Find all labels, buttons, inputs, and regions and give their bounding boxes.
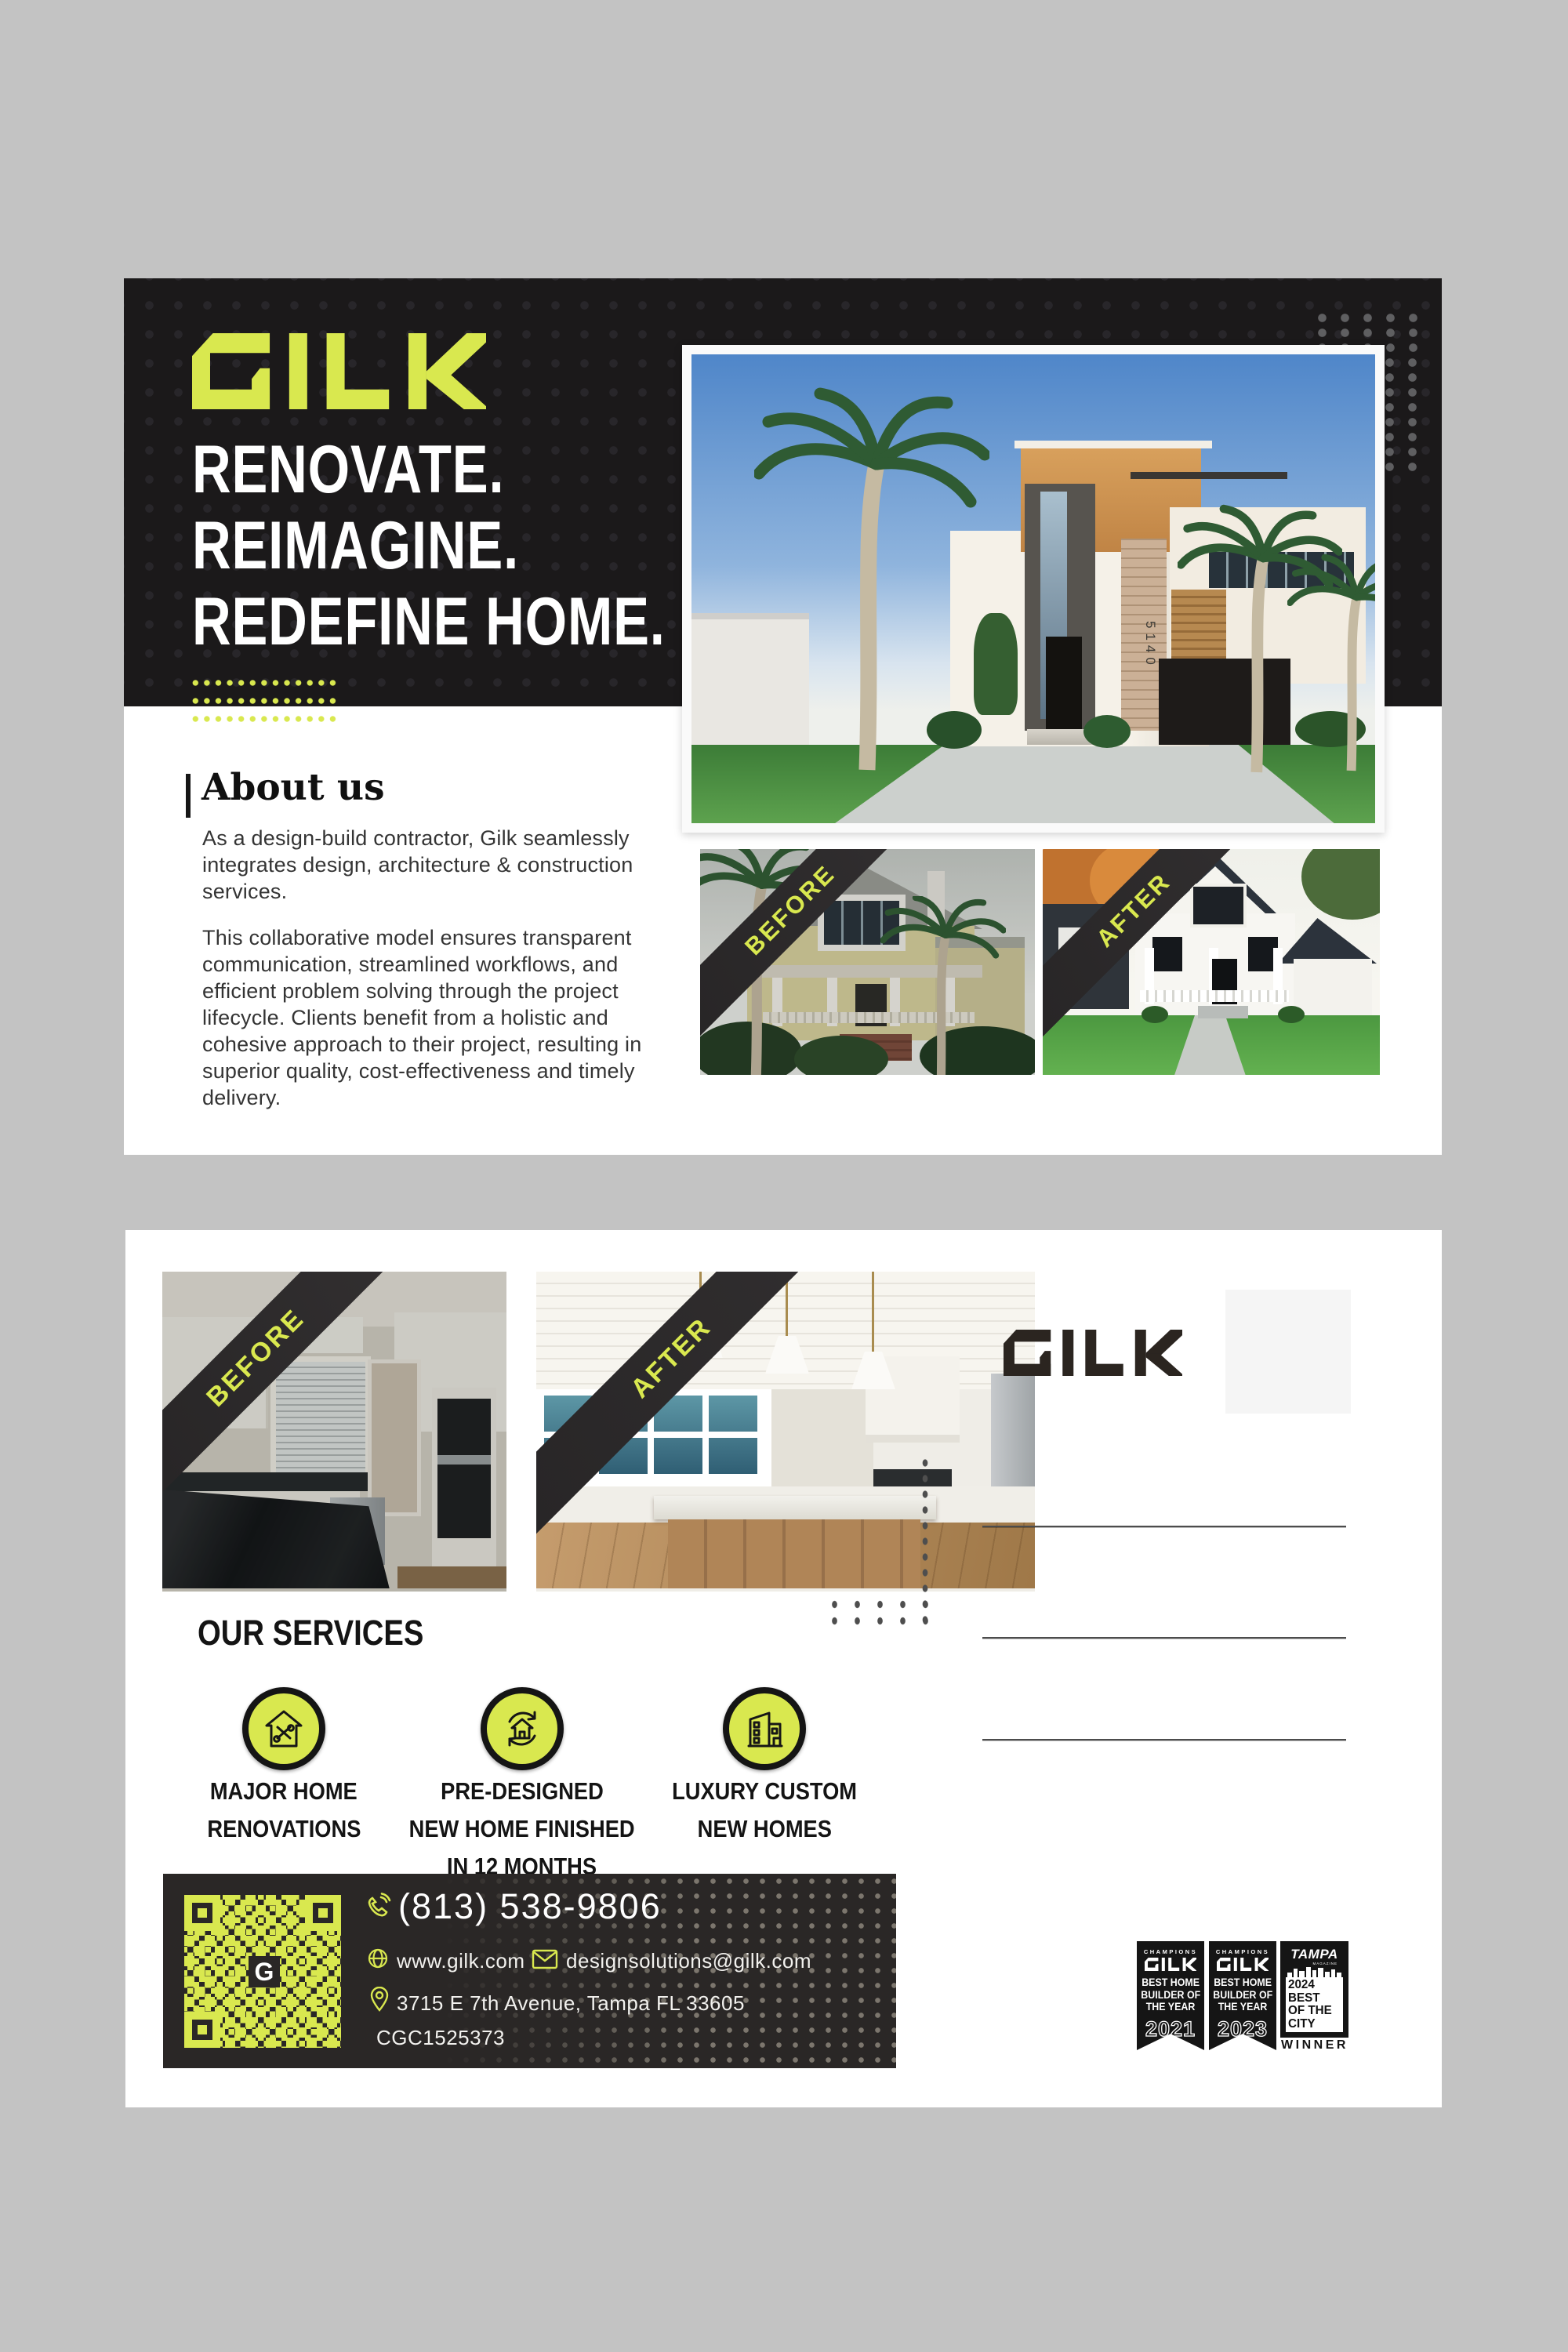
headline-line: RENOVATE. <box>192 432 757 508</box>
backsplash <box>771 1389 873 1486</box>
about-title: About us <box>201 766 385 809</box>
pergola <box>1131 472 1287 479</box>
qr-finder <box>184 1895 220 1931</box>
award-line: BEST HOME <box>1214 1976 1272 1989</box>
bush <box>1142 1006 1168 1023</box>
gilk-logo <box>1145 1958 1196 1971</box>
stamp-box <box>1225 1290 1351 1414</box>
contact-bar: G (813) 538-9806 www.gilk.com <box>163 1874 896 2068</box>
modern-home-icon <box>742 1707 786 1751</box>
hero-photo-modern-house: 5140 <box>691 354 1375 823</box>
bush <box>1278 1006 1305 1023</box>
lime-dot-row <box>190 715 339 723</box>
phone-icon <box>365 1893 392 1919</box>
before-photo-kitchen: BEFORE <box>162 1272 506 1592</box>
award-badge-2023: CHAMPIONS BEST HOME BUILDER OF THE YEAR … <box>1209 1941 1276 2050</box>
gilk-logo <box>1217 1958 1269 1971</box>
island-base <box>668 1519 920 1588</box>
about-paragraph-2: This collaborative model ensures transpa… <box>202 924 679 1111</box>
envelope-icon <box>532 1949 558 1969</box>
house-tools-icon <box>262 1707 306 1751</box>
hero-photo-frame: 5140 <box>682 345 1385 833</box>
upper-windows <box>1190 884 1247 927</box>
decor-dot-rows <box>823 1596 939 1629</box>
about-accent-bar <box>186 774 191 818</box>
address-line <box>982 1739 1346 1740</box>
after-photo-kitchen: AFTER <box>536 1272 1035 1592</box>
qr-center-letter: G <box>249 1956 280 1987</box>
entry-door <box>1046 637 1082 729</box>
card-front: RENOVATE. REIMAGINE. REDEFINE HOME. Abou… <box>124 278 1442 1155</box>
location-pin-icon <box>370 1987 389 2012</box>
service-label-luxury: LUXURY CUSTOM NEW HOMES <box>631 1773 898 1848</box>
window <box>1152 937 1182 971</box>
lime-dot-row <box>190 697 339 705</box>
lime-dot-row <box>190 679 339 687</box>
gilk-logo <box>192 333 486 409</box>
tampa-magazine-label: MAGAZINE <box>1312 1962 1338 1965</box>
qr-finder <box>305 1895 341 1931</box>
house-cycle-icon <box>499 1706 545 1751</box>
award-line: BEST <box>1288 1992 1320 2005</box>
award-line: THE YEAR <box>1218 2001 1268 2013</box>
qr-code: G <box>184 1895 341 2048</box>
award-line: CITY <box>1288 2018 1316 2031</box>
globe-icon <box>367 1947 389 1969</box>
headline-line: REIMAGINE. <box>192 508 757 584</box>
award-line: BUILDER OF <box>1141 1989 1200 2002</box>
corner-dot-grid <box>1378 355 1425 477</box>
tampa-logo: TAMPA <box>1280 1947 1348 1962</box>
award-line: 2024 <box>1288 1979 1315 1992</box>
steps <box>1198 1006 1248 1018</box>
award-badge-tampa-2024: TAMPA MAGAZINE 2024 BEST OF THE CITY <box>1280 1941 1348 2038</box>
pendant-stem <box>872 1272 874 1352</box>
email: designsolutions@gilk.com <box>566 1949 811 1973</box>
palm-tree <box>1287 543 1375 786</box>
award-text-panel: 2024 BEST OF THE CITY <box>1286 1977 1343 2032</box>
award-line: BEST HOME <box>1142 1976 1200 1989</box>
street-address: 3715 E 7th Avenue, Tampa FL 33605 <box>397 1991 745 2016</box>
service-icon-luxury <box>723 1687 806 1770</box>
porch-railing <box>1140 990 1289 1002</box>
about-paragraph-1: As a design-build contractor, Gilk seaml… <box>202 825 679 905</box>
service-icon-renovations <box>242 1687 325 1770</box>
bush <box>1083 715 1131 748</box>
award-winner-label: WINNER <box>1276 2038 1353 2053</box>
service-label-predesigned: PRE-DESIGNED NEW HOME FINISHED IN 12 MON… <box>389 1773 655 1886</box>
after-photo-house: AFTER <box>1043 849 1380 1075</box>
before-photo-house: BEFORE <box>700 849 1035 1075</box>
award-line: OF THE <box>1288 2005 1332 2018</box>
award-badge-2021: CHAMPIONS BEST HOME BUILDER OF THE YEAR … <box>1137 1941 1204 2050</box>
award-eyebrow: CHAMPIONS <box>1137 1948 1204 1955</box>
award-eyebrow: CHAMPIONS <box>1209 1948 1276 1955</box>
award-line: BUILDER OF <box>1213 1989 1272 2002</box>
island-top <box>654 1496 936 1519</box>
roof-cap <box>1014 441 1212 448</box>
qr-finder <box>184 2012 220 2048</box>
address-line <box>982 1526 1346 1527</box>
headline-line: REDEFINE HOME. <box>192 584 757 660</box>
gilk-logo <box>1004 1330 1182 1376</box>
service-label-renovations: MAJOR HOME RENOVATIONS <box>151 1773 417 1848</box>
service-icon-predesigned <box>481 1687 564 1770</box>
phone-number: (813) 538-9806 <box>398 1886 662 1927</box>
services-title: OUR SERVICES <box>198 1613 463 1653</box>
award-line: THE YEAR <box>1146 2001 1196 2013</box>
palm-tree <box>754 386 989 778</box>
skyline-graphic <box>1286 1966 1343 1977</box>
license-number: CGC1525373 <box>376 2026 505 2050</box>
right-wing <box>1294 959 1372 1017</box>
flyer-page: RENOVATE. REIMAGINE. REDEFINE HOME. Abou… <box>0 0 1568 2352</box>
website: www.gilk.com <box>397 1949 524 1973</box>
house-number: 5140 <box>1142 621 1158 670</box>
address-line <box>982 1637 1346 1639</box>
